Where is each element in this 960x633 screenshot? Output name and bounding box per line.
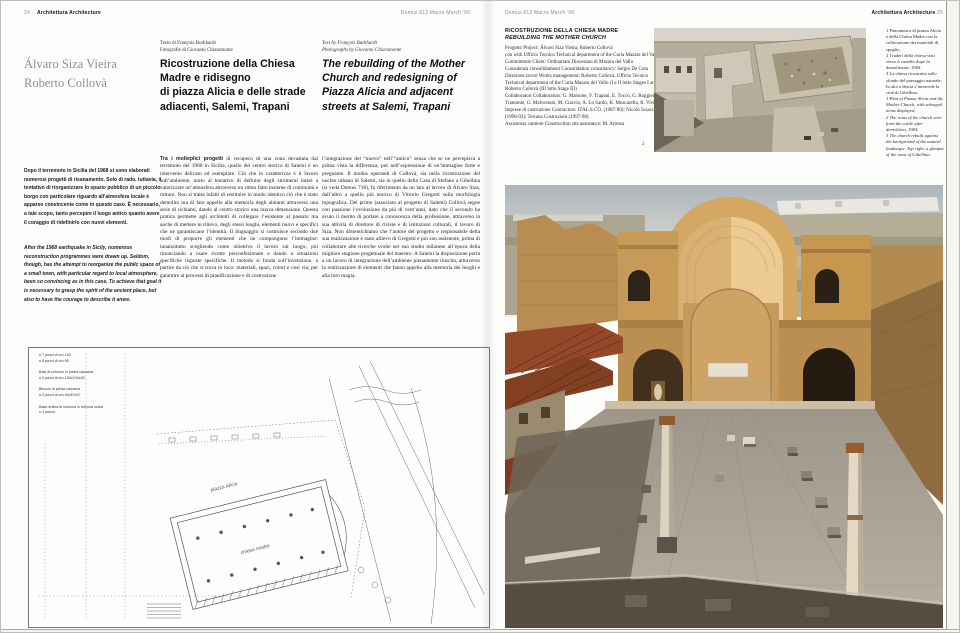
body-column-1-text: di recupero di una zona devastata dal te… [160,156,318,279]
right-issue-label: Domus 812 Marzo March ’99 [505,10,574,16]
left-page: 24 Architettura Architecture Domus 812 M… [0,0,487,633]
author-names: Álvaro Siza Vieira Roberto Collovà [24,55,164,93]
church-interior-photo [505,185,943,628]
body-column-1: Tra i molteplici progetti di recupero di… [160,156,318,348]
body-lead-in: Tra i molteplici progetti [160,156,223,162]
captions-italian: 1 Panoramica di piazza Alicia e della Ch… [886,28,944,96]
right-section-group: Architettura Architecture 25 [787,10,943,16]
project-credits: Progetto Project: Álvaro Siza Vieira, Ro… [505,46,665,129]
right-page-edge [946,0,960,633]
plan-legend: n.7 pezzi di cm 140 n.5 pezzi di cm 90 B… [39,353,169,416]
plan-label-chiesa: chiesa madre [240,543,271,556]
magazine-spread: 24 Architettura Architecture Domus 812 M… [0,0,960,633]
credits-english: Text by François Burkhardt Photographs b… [322,40,477,54]
captions-english: 1 Plan of Piazza Alicia and the Mother C… [886,96,944,158]
figure-2-number: 2 [642,142,645,147]
left-page-number: 24 [24,10,30,16]
intro-italian: Dopo il terremoto in Sicilia del 1968 si… [24,167,162,227]
article-title-italian: Ricostruzione della Chiesa Madre e ridis… [160,57,318,114]
right-page: Domus 812 Marzo March ’99 Architettura A… [487,0,960,633]
body-column-2: l’integrazione del “nuovo” nell’“antico”… [322,156,480,348]
plan-label-piazza: piazza Alicia [210,481,238,494]
bottom-page-edge [0,629,960,633]
project-title-italian: RICOSTRUZIONE DELLA CHIESA MADRE [505,28,675,35]
right-page-number: 25 [937,10,943,16]
intro-english: After the 1968 earthquake in Sicily, num… [24,244,162,304]
spine-fold [480,0,496,633]
aerial-ruins-photo [654,28,866,152]
credits-italian: Testo di François Burkhardt Fotografie d… [160,40,310,54]
left-issue-label: Domus 812 Marzo March ’99 [340,10,470,16]
article-title-english: The rebuilding of the Mother Church and … [322,57,480,114]
right-section-label: Architettura Architecture [871,10,935,16]
project-title-english: REBUILDING THE MOTHER CHURCH [505,35,675,42]
site-plan-figure: piazza Alicia chiesa madre n.7 pezzi di … [28,347,490,628]
left-section-label: Architettura Architecture [37,10,101,16]
